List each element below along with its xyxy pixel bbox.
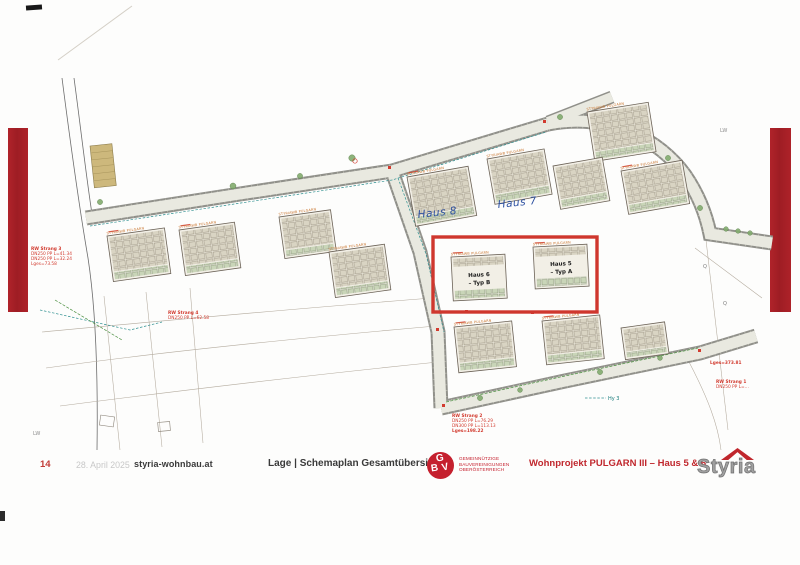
building-haus-5: STYRIAWB PULGARN Haus 5 – Typ A [533, 240, 589, 289]
building: STYRIAWB PULGARN [278, 205, 336, 258]
page-date: 28. April 2025 [76, 460, 130, 470]
gbv-text-line3: OBERÖSTERREICH [459, 467, 509, 473]
haus-5-type: – Typ A [550, 269, 573, 276]
scanned-plan-page: STYRIAWB PULGARN STYRIAWB PULGARN STYRIA… [0, 0, 800, 565]
haus-6-label: Haus 6 [468, 272, 490, 279]
building: STYRIAWB PULGARN [620, 156, 689, 215]
q-mark-2: Q [723, 301, 727, 307]
hydrant-3-label: Hy 3 [608, 396, 620, 402]
svg-text:Lges=73.58: Lges=73.58 [31, 261, 57, 267]
building [621, 322, 669, 360]
scan-artifact-fleck [0, 511, 5, 521]
lw-label-top-right: LW [720, 128, 727, 134]
annotation-rw-strang-1: Lges=373.81 RW Strang 1 DN250 PP L=… [710, 360, 749, 390]
stream-lines [62, 78, 97, 450]
styria-logo: Styria [697, 450, 772, 480]
haus-5-label: Haus 5 [550, 261, 572, 268]
website-label: styria-wohnbau.at [134, 459, 213, 469]
building: STYRIAWB PULGARN [542, 310, 605, 364]
lw-label-bottom-left: LW [33, 431, 40, 437]
building: STYRIAWB PULGARN [486, 144, 552, 204]
page-number: 14 [40, 459, 51, 470]
haus-6-type: – Typ B [468, 280, 490, 287]
svg-text:DN250 PP L=…: DN250 PP L=… [716, 384, 749, 390]
annotation-rw-strang-4: RW Strang 4 DN250 PP L=62.58 [168, 310, 209, 321]
faint-pencil-line [58, 6, 132, 60]
gbv-logo: G B V [427, 452, 454, 479]
svg-text:DN250 PP L=62.58: DN250 PP L=62.58 [168, 315, 209, 321]
building: STYRIAWB PULGARN [178, 218, 240, 276]
site-plan-drawing: STYRIAWB PULGARN STYRIAWB PULGARN STYRIA… [0, 0, 800, 452]
annotation-rw-strang-3: RW Strang 3 DN250 PP L=41.34 DN250 PP L=… [31, 246, 72, 267]
project-title: Wohnprojekt PULGARN III – Haus 5 & 6 [529, 458, 706, 469]
section-title: Lage | Schemaplan Gesamtübersicht [268, 458, 443, 469]
styria-logo-text: Styria [697, 457, 772, 477]
q-mark-1: Q [703, 264, 707, 270]
gbv-logo-text: GEMEINNÜTZIGE BAUVEREINIGUNGEN OBERÖSTER… [459, 456, 509, 473]
building: STYRIAWB PULGARN [586, 98, 656, 162]
building [553, 157, 610, 209]
svg-text:Lges=373.81: Lges=373.81 [710, 360, 741, 366]
svg-text:Lges=198.22: Lges=198.22 [452, 428, 483, 434]
annotation-rw-strang-2: RW Strang 2 DN250 PP L=76.29 DN300 PP L=… [452, 413, 496, 434]
gbv-letter-v: V [441, 462, 450, 473]
building: STYRIAWB PULGARN [328, 240, 390, 298]
building-haus-6: STYRIAWB PULGARN Haus 6 – Typ B [451, 250, 507, 301]
building: STYRIAWB PULGARN [106, 223, 170, 281]
building: STYRIAWB PULGARN [454, 316, 517, 372]
parking-strip [90, 144, 116, 188]
gbv-letter-b: B [430, 464, 439, 475]
